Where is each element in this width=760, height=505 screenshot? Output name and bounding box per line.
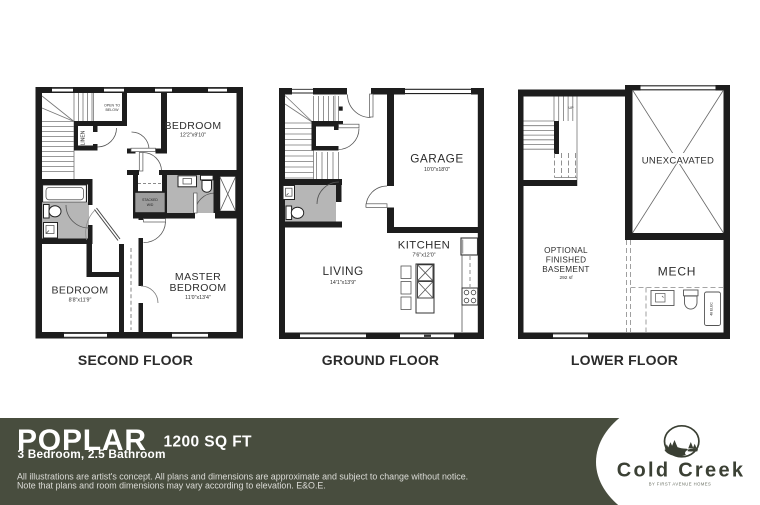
svg-text:MECH: MECH <box>658 265 697 279</box>
svg-text:10'0"x18'0": 10'0"x18'0" <box>424 167 450 173</box>
svg-text:11'0"x13'4": 11'0"x13'4" <box>185 295 211 301</box>
svg-text:Cold Creek: Cold Creek <box>617 460 746 482</box>
svg-text:LINEN: LINEN <box>81 130 87 145</box>
svg-text:BEDROOM: BEDROOM <box>51 285 108 297</box>
svg-text:GARAGE: GARAGE <box>410 152 463 166</box>
svg-text:OPTIONAL: OPTIONAL <box>544 246 588 255</box>
svg-text:48 ELEC: 48 ELEC <box>710 302 714 316</box>
svg-text:7'6"x12'0": 7'6"x12'0" <box>412 253 435 259</box>
svg-text:BY FIRST AVENUE HOMES: BY FIRST AVENUE HOMES <box>649 482 712 487</box>
svg-text:292 sf: 292 sf <box>559 275 573 281</box>
svg-text:FINISHED: FINISHED <box>546 256 587 265</box>
svg-text:BASEMENT: BASEMENT <box>542 265 589 274</box>
svg-text:BEDROOM: BEDROOM <box>164 120 221 132</box>
svg-text:SECOND FLOOR: SECOND FLOOR <box>78 352 193 368</box>
svg-text:BEDROOM: BEDROOM <box>169 282 226 294</box>
svg-text:W/D: W/D <box>147 203 154 207</box>
svg-text:LOWER FLOOR: LOWER FLOOR <box>571 352 678 368</box>
svg-text:3 Bedroom, 2.5 Bathroom: 3 Bedroom, 2.5 Bathroom <box>18 447 166 461</box>
svg-text:STACKED: STACKED <box>142 198 158 202</box>
svg-text:OPEN TO: OPEN TO <box>104 104 120 108</box>
svg-text:1200 SQ FT: 1200 SQ FT <box>164 434 253 451</box>
svg-text:12'2"x9'10": 12'2"x9'10" <box>180 133 206 139</box>
svg-text:UP: UP <box>569 106 575 110</box>
svg-text:GROUND FLOOR: GROUND FLOOR <box>322 352 440 368</box>
svg-text:Note that plans and room dimen: Note that plans and room dimensions may … <box>17 481 326 491</box>
svg-text:KITCHEN: KITCHEN <box>398 240 450 252</box>
svg-text:8'8"x11'9": 8'8"x11'9" <box>69 298 92 304</box>
svg-text:UNEXCAVATED: UNEXCAVATED <box>642 156 714 167</box>
svg-text:14'1"x13'9": 14'1"x13'9" <box>330 280 356 286</box>
svg-text:LIVING: LIVING <box>322 264 363 278</box>
svg-text:BELOW: BELOW <box>106 108 120 112</box>
